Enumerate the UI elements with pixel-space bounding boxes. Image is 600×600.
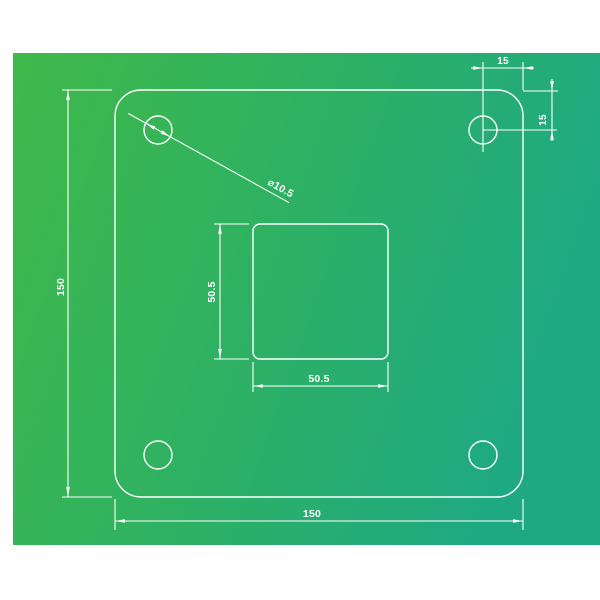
dim-label-plate-height: 150 (55, 278, 67, 296)
dim-label-hole-offset-side: 15 (538, 114, 549, 126)
dim-label-cutout-height: 50.5 (206, 281, 218, 302)
dim-label-plate-width: 150 (303, 508, 321, 520)
drawing-background (13, 53, 600, 545)
technical-drawing-canvas: 150 150 50.5 50.5 15 (0, 0, 600, 600)
dim-label-hole-offset-top: 15 (497, 56, 509, 67)
dim-label-cutout-width: 50.5 (308, 373, 329, 385)
